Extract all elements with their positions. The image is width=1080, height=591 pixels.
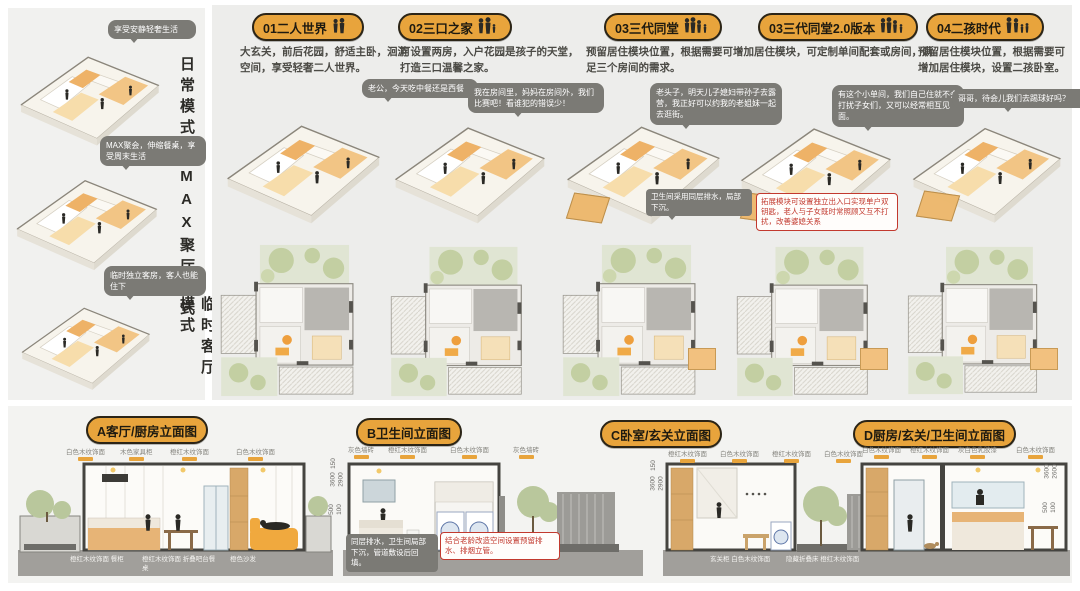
axon-diagram xyxy=(10,162,162,280)
material-code-swatch xyxy=(519,455,534,459)
dimension: 100 xyxy=(336,504,343,515)
floor-plan xyxy=(388,245,558,398)
three-generations-2-icon xyxy=(879,17,907,37)
material-code-swatch xyxy=(129,457,144,461)
add-on-module xyxy=(860,348,888,370)
material-code-swatch xyxy=(78,457,93,461)
bubble-tail xyxy=(120,163,132,176)
elevation-title-a: A客厅/厨房立面图 xyxy=(86,416,208,444)
floor-plan xyxy=(560,243,732,398)
mode-callout: 临时独立客房，客人也能住下 xyxy=(104,266,206,296)
dimension: 2900 xyxy=(338,472,345,486)
axon-diagram xyxy=(220,105,385,235)
dual-key-note: 拓展模块可设置独立出入口实现单户双钥匙，老人与子女既时常照顾又互不打扰，改善婆媳… xyxy=(756,193,898,231)
add-on-module xyxy=(688,348,716,370)
scenarios-panel: 01二人世界 02三口之家 03三代同堂 03三代同堂2.0版本 04二孩时代 … xyxy=(212,5,1072,400)
scenario-desc: 可设置两房，入户花园是孩子的天堂，打造三口温馨之家。 xyxy=(400,45,580,77)
material-label: 橙红木纹饰面 xyxy=(170,446,209,461)
scenario-desc: 大玄关，前后花园，舒适主卧，洄游空间，享受轻奢二人世界。 xyxy=(240,45,410,77)
bubble-tail xyxy=(128,36,140,49)
dimension: 500 xyxy=(1042,502,1049,513)
elevation-title-b: B卫生间立面图 xyxy=(356,418,462,446)
material-label: 白色木纹饰面 xyxy=(66,446,105,461)
material-code-swatch xyxy=(784,459,799,463)
scenario-pill-01: 01二人世界 xyxy=(252,13,364,41)
material-code-swatch xyxy=(354,455,369,459)
material-label: 橙红木纹饰面 xyxy=(910,444,949,459)
bubble-tail xyxy=(1002,105,1014,118)
dimension: 150 xyxy=(650,460,657,471)
scenario-pill-02: 02三口之家 xyxy=(398,13,512,41)
dimension: 150 xyxy=(330,458,337,469)
bubble-tail xyxy=(666,213,678,226)
living-modes-panel: 享受安静轻奢生活 日常模式 MAX聚会，伸缩餐桌，享受周末生活 MAX聚厅模式 … xyxy=(8,8,205,400)
dimension: 100 xyxy=(1050,502,1057,513)
material-label: 橙红木纹饰面 xyxy=(668,448,707,463)
material-code-swatch xyxy=(182,457,197,461)
speech-bubble: 老公，今天吃中餐还是西餐 xyxy=(362,79,478,98)
material-code-swatch xyxy=(922,455,937,459)
material-label: 白色木纹饰面 xyxy=(1016,444,1055,459)
axon-diagram xyxy=(388,107,550,235)
material-label: 白色木纹饰面 xyxy=(450,444,489,459)
axon-diagram xyxy=(906,109,1066,233)
scenario-pill-04: 04二孩时代 xyxy=(926,13,1044,41)
pipe-reserve-note: 结合老龄改造空间设置预留排水、排烟立管。 xyxy=(440,532,560,560)
material-label: 白色木纹饰面 xyxy=(824,448,863,463)
finish-label: 隐藏折叠床 橙红木纹饰面 xyxy=(786,556,866,565)
finish-label: 橙红木纹饰面 餐柜 xyxy=(70,556,132,565)
material-label: 橙红木纹饰面 xyxy=(772,448,811,463)
floor-plan xyxy=(218,243,390,398)
scenario-desc: 预留居住模块位置，根据需要可增加居住模块，设置二孩卧室。 xyxy=(918,45,1070,77)
material-code-swatch xyxy=(400,455,415,459)
scenario-desc: 预留居住模块位置，根据需要可增加居住模块，可定制单间配套或房间，满足三个房间的需… xyxy=(586,45,934,77)
dimension: 500 xyxy=(328,504,335,515)
speech-bubble: 我在房间里，妈妈在房间外，我们比赛吧！看谁犯的错误少！ xyxy=(468,83,604,113)
scenario-pill-03-2: 03三代同堂2.0版本 xyxy=(758,13,918,41)
dimension: 2600 xyxy=(1052,464,1059,478)
scenario-pill-03: 03三代同堂 xyxy=(604,13,722,41)
speech-bubble: 老头子，明天儿子媳妇带孙子去露营，我正好可以约我的老姐妹一起去逛街。 xyxy=(650,83,782,125)
dimension: 3600 xyxy=(650,476,657,490)
three-generations-icon xyxy=(683,17,711,37)
finish-label: 橙色沙发 xyxy=(230,556,274,565)
material-label: 白色木纹饰面 xyxy=(720,448,759,463)
material-label: 木色家具柜 xyxy=(120,446,153,461)
floor-plan xyxy=(734,245,904,398)
dimension: 3600 xyxy=(1044,464,1051,478)
material-code-swatch xyxy=(874,455,889,459)
bubble-tail xyxy=(680,122,692,135)
sunken-slab-note: 同层排水，卫生间局部下沉，管道敷设后回填。 xyxy=(346,534,438,572)
mode-callout: MAX聚会，伸缩餐桌，享受周末生活 xyxy=(100,136,206,166)
material-label: 灰白色乳胶漆 xyxy=(958,444,997,459)
bubble-tail xyxy=(512,110,524,123)
family-of-three-icon xyxy=(477,17,501,37)
material-label: 橙红木纹饰面 xyxy=(388,444,427,459)
bubble-tail xyxy=(382,95,394,108)
floor-plan xyxy=(906,245,1072,396)
material-label: 灰色墙砖 xyxy=(348,444,374,459)
bubble-tail xyxy=(124,293,136,306)
dimension: 2900 xyxy=(658,476,665,490)
material-label: 灰色墙砖 xyxy=(513,444,539,459)
drainage-note: 卫生间采用同层排水，局部下沉。 xyxy=(646,189,752,216)
mode-label: 日常模式 xyxy=(176,56,197,140)
elevations-panel: A客厅/厨房立面图 B卫生间立面图 C卧室/玄关立面图 D厨房/玄关/卫生间立面… xyxy=(8,406,1072,583)
mode-callout: 享受安静轻奢生活 xyxy=(108,20,196,39)
axon-diagram xyxy=(10,292,160,398)
finish-label: 玄关柜 白色木纹饰面 xyxy=(710,556,782,565)
material-code-swatch xyxy=(462,455,477,459)
couple-icon xyxy=(331,17,353,37)
elevation-drawing-d xyxy=(858,458,1070,576)
add-on-module xyxy=(1030,348,1058,370)
material-code-swatch xyxy=(1028,455,1043,459)
design-board: 享受安静轻奢生活 日常模式 MAX聚会，伸缩餐桌，享受周末生活 MAX聚厅模式 … xyxy=(0,0,1080,591)
material-code-swatch xyxy=(732,459,747,463)
speech-bubble: 有这个小单间，我们自己住就不会打扰子女们，又可以经常相互见面。 xyxy=(832,85,964,127)
material-label: 白色木纹饰面 xyxy=(236,446,275,461)
dimension: 3600 xyxy=(330,472,337,486)
material-label: 白色木纹饰面 xyxy=(862,444,901,459)
two-kids-family-icon xyxy=(1005,17,1033,37)
material-code-swatch xyxy=(680,459,695,463)
speech-bubble: 哥哥，待会儿我们去踢球好吗？ xyxy=(952,89,1080,108)
material-code-swatch xyxy=(248,457,263,461)
bubble-tail xyxy=(862,124,874,137)
material-code-swatch xyxy=(836,459,851,463)
finish-label: 橙红木纹饰面 折叠吧台餐桌 xyxy=(142,556,216,574)
elevation-title-c: C卧室/玄关立面图 xyxy=(600,420,722,448)
material-code-swatch xyxy=(970,455,985,459)
